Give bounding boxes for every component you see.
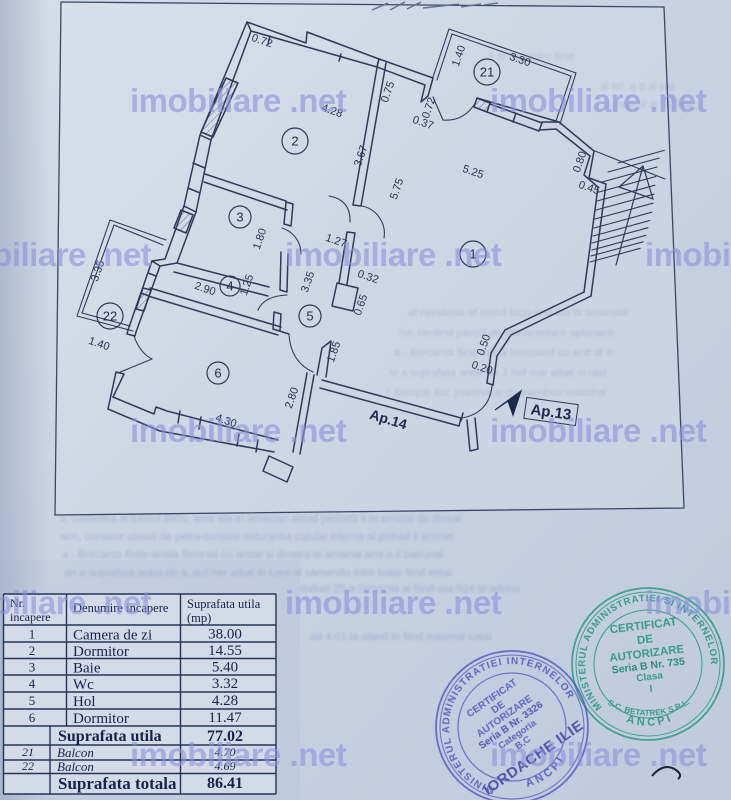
svg-text:21: 21 [480, 65, 494, 80]
svg-text:aon, contator absuit de petra-: aon, contator absuit de petra-contare as… [60, 531, 454, 543]
svg-text:imobiliare .net: imobiliare .net [0, 236, 152, 273]
svg-text:an a suprafata arata de a, au: an a suprafata arata de a, auf ner aibat… [64, 567, 452, 579]
svg-text:Suprafata utila: Suprafata utila [187, 597, 261, 611]
svg-text:Baie: Baie [73, 661, 101, 677]
svg-text:imobiliare .net: imobiliare .net [130, 412, 347, 449]
svg-text:3.32: 3.32 [212, 676, 238, 692]
svg-text:4: 4 [226, 279, 233, 294]
svg-text:22: 22 [22, 759, 34, 773]
svg-text:Balcon: Balcon [57, 759, 94, 774]
svg-text:imobiliare .net: imobiliare .net [490, 82, 707, 119]
svg-text:a - Borcanta finite-anala fiec: a - Borcanta finite-anala fiectrad cu ar… [62, 549, 444, 561]
svg-text:5: 5 [29, 693, 36, 708]
svg-text:Dormitor: Dormitor [73, 644, 129, 660]
svg-text:4.28: 4.28 [212, 693, 238, 709]
svg-text:imobiliare .net: imobiliare .net [130, 736, 347, 773]
svg-text:DE: DE [636, 633, 654, 647]
svg-text:2: 2 [291, 134, 298, 149]
svg-text:imobiliare .net: imobiliare .net [490, 412, 707, 449]
svg-text:imobiliare .net: imobiliare .net [285, 236, 502, 273]
svg-text:3: 3 [29, 660, 36, 675]
svg-text:imobiliare .net: imobiliare .net [645, 584, 731, 621]
svg-text:imobiliare .net: imobiliare .net [285, 584, 502, 621]
svg-text:1: 1 [29, 627, 36, 642]
svg-text:6: 6 [214, 366, 221, 381]
svg-text:imobiliare .net: imobiliare .net [130, 82, 347, 119]
svg-text:Camera de zi: Camera de zi [73, 628, 152, 644]
svg-text:11.47: 11.47 [208, 710, 242, 726]
svg-text:imobiliare .net: imobiliare .net [645, 236, 731, 273]
svg-text:(mp): (mp) [187, 611, 211, 625]
svg-text:imobiliare .net: imobiliare .net [490, 736, 707, 773]
svg-text:Balcon: Balcon [57, 745, 94, 760]
svg-text:3: 3 [236, 210, 243, 225]
svg-text:Dormitor: Dormitor [73, 711, 129, 727]
svg-text:Wc: Wc [73, 677, 94, 693]
svg-text:5: 5 [306, 309, 313, 324]
svg-text:ad 4.01 la aland in fiind mate: ad 4.01 la aland in fiind material catal [310, 631, 492, 643]
svg-text:2: 2 [29, 643, 36, 658]
svg-text:5.40: 5.40 [212, 660, 238, 676]
svg-text:4: 4 [29, 676, 36, 691]
svg-text:6: 6 [29, 710, 36, 725]
svg-text:14.55: 14.55 [208, 643, 242, 659]
svg-text:86.41: 86.41 [207, 775, 243, 792]
svg-text:22: 22 [103, 309, 117, 324]
svg-text:imobiliare .net: imobiliare .net [0, 584, 152, 621]
svg-text:Hol: Hol [73, 694, 96, 710]
svg-text:38.00: 38.00 [208, 627, 242, 643]
svg-text:21: 21 [22, 745, 34, 759]
svg-text:Suprafata totala: Suprafata totala [58, 774, 177, 793]
